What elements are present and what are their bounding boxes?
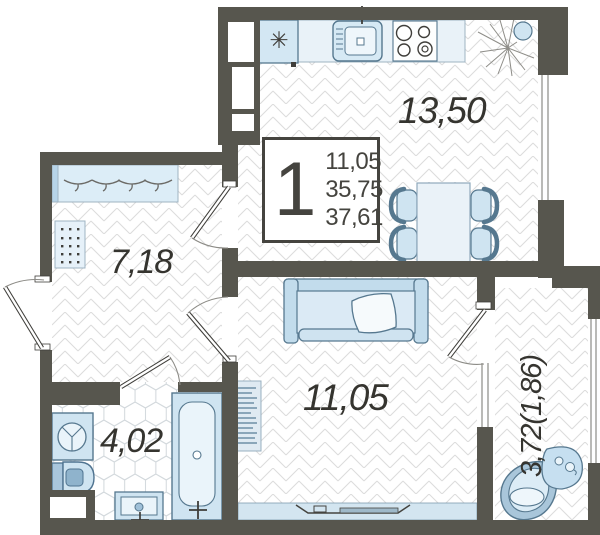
- living-room-window: [238, 503, 477, 520]
- unit-areas: 11,05 35,75 37,61: [325, 148, 383, 232]
- washing-machine-icon: [52, 413, 93, 460]
- kitchen-window: [538, 75, 552, 200]
- floor-plan-drawing: [0, 0, 600, 535]
- balcony-inner-window: [477, 363, 493, 427]
- pillow-icon: [352, 294, 396, 333]
- balcony-outer-window: [588, 319, 600, 463]
- floor-plan: ✳ 13,50 7,18 11,05 4,02 3,72(1,86) 1 11,…: [0, 0, 600, 535]
- toilet-icon: [52, 462, 94, 493]
- unit-info-card: 1 11,05 35,75 37,61: [262, 137, 380, 243]
- bathroom-area-label: 4,02: [100, 422, 162, 461]
- balcony-area-label: 3,72(1,86): [516, 331, 550, 501]
- total-area-value: 37,61: [325, 204, 383, 232]
- area-without-balcony-value: 35,75: [325, 176, 383, 204]
- sofa: [284, 279, 428, 343]
- rooms-count: 1: [274, 158, 316, 223]
- fridge-snowflake-icon: ✳: [264, 27, 294, 54]
- hallway-area-label: 7,18: [110, 243, 172, 282]
- bathtub-icon: [172, 393, 222, 520]
- dining-table: [417, 183, 470, 263]
- stove-icon: [393, 21, 437, 61]
- living-room-area-label: 11,05: [303, 377, 388, 419]
- kitchen-area-label: 13,50: [398, 90, 486, 132]
- wardrobe: [52, 165, 178, 202]
- living-area-value: 11,05: [325, 148, 383, 176]
- electrical-panel-icon: [55, 221, 85, 268]
